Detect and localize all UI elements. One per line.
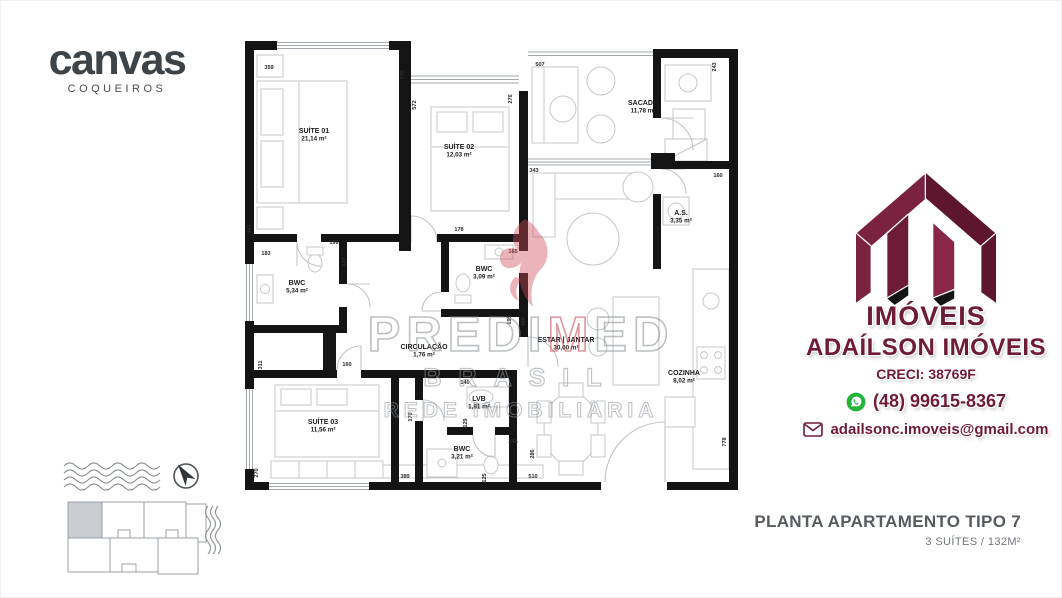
room-label-suite-01: SUÍTE 0121,14 m²	[299, 126, 329, 143]
broker-brand: IMÓVEIS	[793, 301, 1059, 332]
room-label-bwc-suite-03: BWC3,21 m²	[451, 446, 473, 461]
broker-creci: CRECI: 38769F	[793, 366, 1059, 382]
plan-title: PLANTA APARTAMENTO TIPO 7	[754, 512, 1021, 532]
room-label-estar-jantar: ESTAR | JANTAR30,00 m²	[538, 337, 595, 352]
dimension-170: 170	[408, 412, 414, 421]
dimension-359: 359	[264, 65, 273, 71]
whatsapp-icon	[846, 392, 866, 412]
dimension-443: 443	[247, 224, 253, 233]
dimension-311: 311	[258, 360, 264, 369]
dimension-243: 243	[712, 62, 718, 71]
broker-name: ADAÍLSON IMÓVEIS	[793, 334, 1059, 362]
room-label-suite-03: SUÍTE 0311,56 m²	[308, 417, 338, 434]
room-label-sacada: SACADA11,78 m²	[628, 100, 658, 115]
email-icon	[803, 422, 823, 437]
broker-phone: (48) 99615-8367	[873, 391, 1006, 412]
broker-house-logo	[846, 169, 1006, 309]
dimension-183: 183	[261, 251, 270, 257]
dimension-286: 286	[530, 449, 536, 458]
dimension-343: 343	[529, 168, 538, 174]
dimension-129: 129	[463, 418, 469, 427]
dimension-140: 140	[460, 380, 469, 386]
room-label-suite-02: SUÍTE 0212,03 m²	[444, 142, 474, 159]
dimension-246: 246	[508, 439, 517, 445]
development-logo-subtitle: COQUEIROS	[47, 83, 187, 95]
dimension-507: 507	[535, 62, 544, 68]
dimension-125: 125	[482, 473, 488, 482]
broker-block: IMÓVEIS ADAÍLSON IMÓVEIS CRECI: 38769F (…	[793, 169, 1059, 438]
dimension-408: 408	[521, 317, 527, 326]
room-label-bwc-suite-02: BWC3,09 m²	[473, 266, 495, 281]
water-waves-icon	[64, 463, 160, 490]
dimension-572: 572	[412, 100, 418, 109]
dimension-160: 160	[713, 173, 722, 179]
dimension-165: 165	[508, 249, 517, 255]
room-label-bwc-suite-01: BWC5,34 m²	[286, 280, 308, 295]
development-logo-name: canvas	[47, 39, 187, 82]
dimension-276: 276	[508, 94, 514, 103]
plan-subtitle: 3 SUÍTES / 132M²	[754, 536, 1021, 548]
floor-plan: 3597705722765072433431604431991833271781…	[241, 29, 741, 501]
site-key-plan	[56, 444, 224, 576]
dimension-270: 270	[254, 468, 260, 477]
dimension-160: 160	[342, 362, 351, 368]
broker-email-row: adailsonc.imoveis@gmail.com	[793, 421, 1059, 438]
dimension-199: 199	[329, 240, 338, 246]
dimension-389: 389	[400, 474, 409, 480]
dimension-770: 770	[400, 70, 406, 79]
dimension-195: 195	[507, 315, 513, 324]
north-compass-icon	[173, 461, 198, 488]
room-label-circulacao: CIRCULAÇÃO1,76 m²	[400, 342, 448, 359]
dimension-327: 327	[342, 257, 348, 266]
flyer-page: canvas COQUEIROS	[0, 0, 1062, 598]
development-logo: canvas COQUEIROS	[47, 39, 187, 95]
dimension-778: 778	[722, 437, 728, 446]
plan-caption: PLANTA APARTAMENTO TIPO 7 3 SUÍTES / 132…	[754, 512, 1021, 548]
broker-email: adailsonc.imoveis@gmail.com	[830, 421, 1048, 438]
building-footprint	[68, 502, 206, 574]
dimension-178: 178	[454, 227, 463, 233]
dimension-510: 510	[528, 474, 537, 480]
broker-phone-row: (48) 99615-8367	[793, 391, 1059, 412]
water-waves-right-icon	[206, 506, 221, 554]
